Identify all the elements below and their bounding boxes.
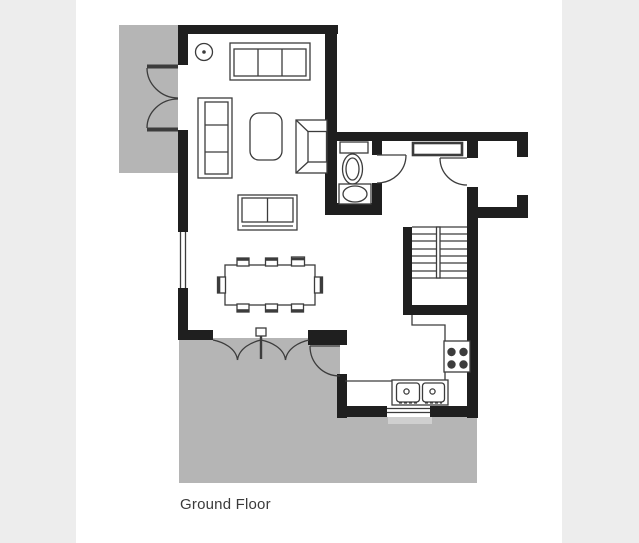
wc-door (377, 155, 406, 183)
hob (444, 341, 470, 372)
front-door (440, 158, 467, 185)
kitchen-counter (345, 315, 445, 381)
dining-table (225, 265, 315, 305)
ceiling-light (196, 44, 213, 61)
window-kitchen (387, 406, 430, 417)
loveseat (238, 195, 297, 230)
radiator (413, 143, 462, 155)
double-sink (392, 380, 448, 405)
side-patio (119, 25, 178, 173)
sofa-3-seat (230, 43, 310, 80)
coffee-table (250, 113, 282, 160)
floorplan (0, 0, 639, 543)
toilet (340, 142, 368, 184)
staircase (412, 227, 467, 278)
armchair (296, 120, 327, 173)
ground-floor-label: Ground Floor (180, 496, 271, 513)
door-step (388, 416, 432, 424)
window-left (178, 232, 188, 288)
wash-basin (339, 184, 371, 204)
sofa-side (198, 98, 232, 178)
